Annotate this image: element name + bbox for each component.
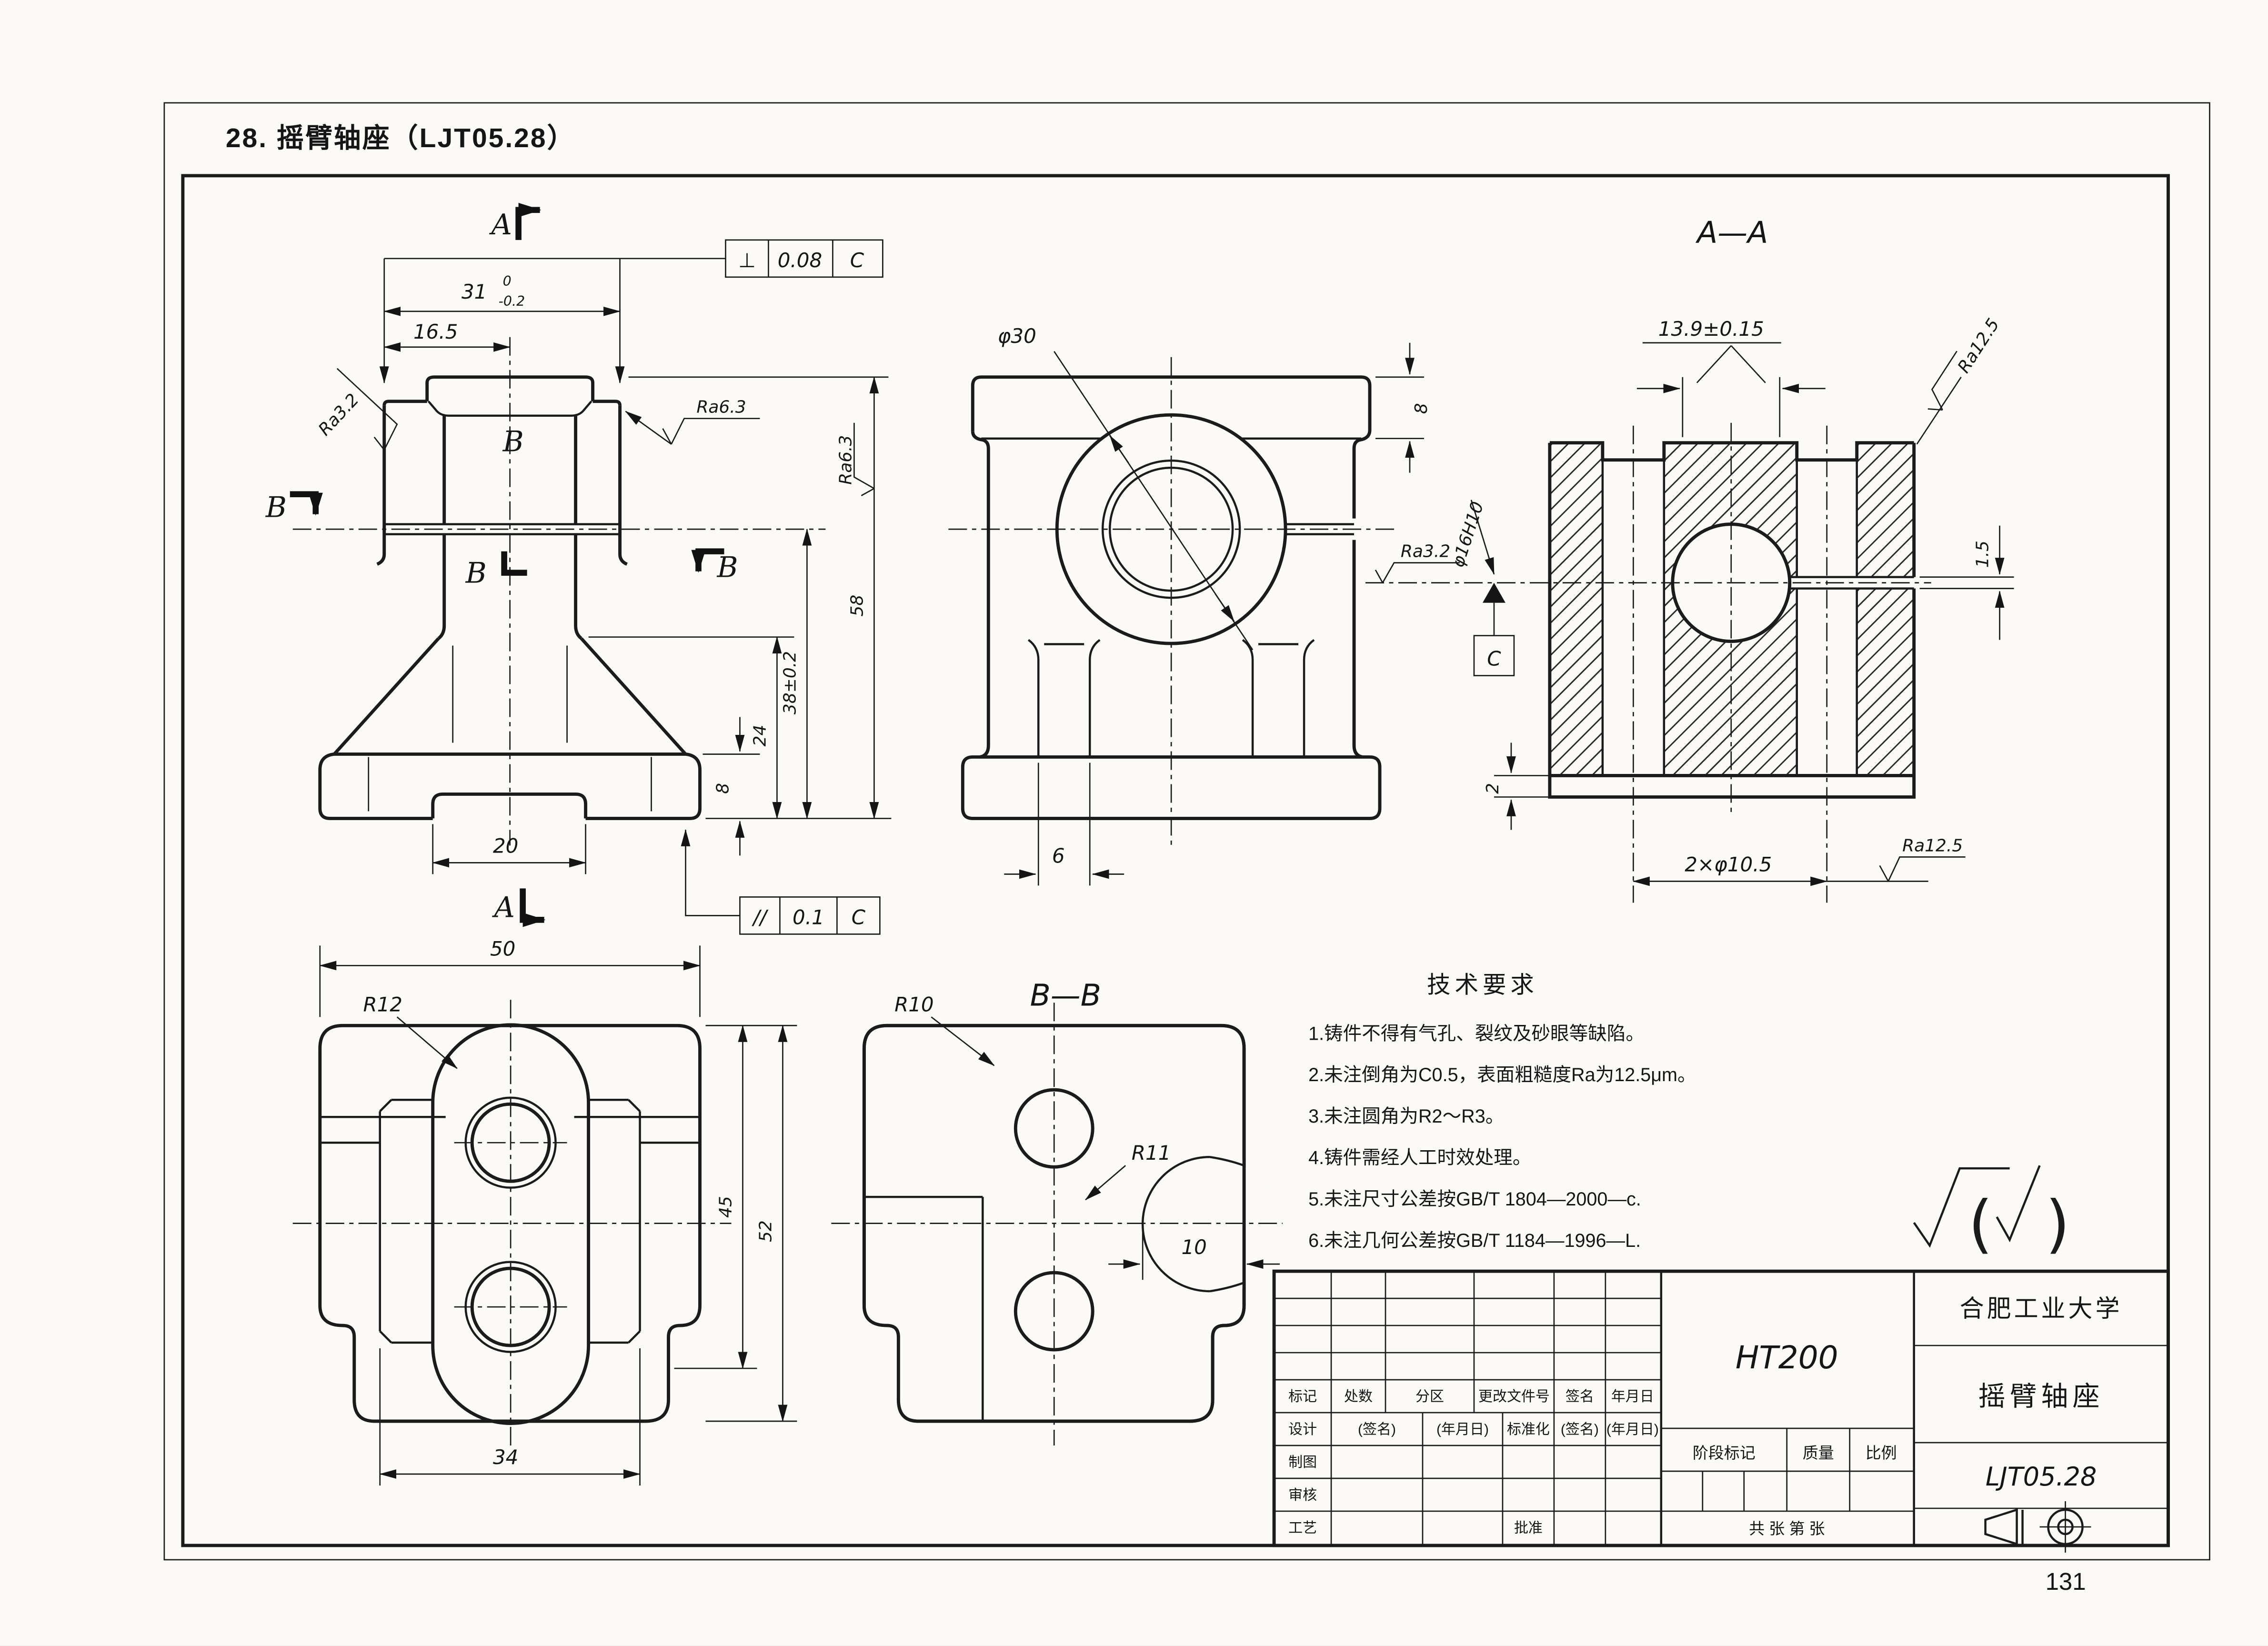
tb-sheets: 共 张 第 张 [1749, 1520, 1825, 1537]
tb-process: 工艺 [1288, 1520, 1317, 1536]
dim-52: 52 [756, 1220, 775, 1242]
dim-1-5: 1.5 [1973, 541, 1993, 568]
tech-title: 技术要求 [1427, 972, 1538, 998]
dim-20: 20 [493, 834, 518, 857]
section-b-right-label: B [716, 551, 738, 584]
tech-item-4: 4.铸件需经人工时效处理。 [1308, 1147, 1531, 1168]
tb-company: 合肥工业大学 [1960, 1295, 2123, 1322]
dim-r12: R12 [363, 993, 402, 1016]
tb-material: HT200 [1736, 1339, 1838, 1376]
other-surfaces-roughness-symbol: ( ) [1914, 1165, 2070, 1261]
dim-31: 31 [462, 280, 487, 303]
ra125-bottom-text: Ra12.5 [1902, 836, 1963, 855]
section-b-center-label: B [502, 425, 524, 459]
ra63-mid-text: Ra6.3 [696, 398, 746, 417]
fcf-perp-symbol: ⊥ [738, 249, 756, 272]
datum-triangle [1483, 583, 1505, 603]
revision-table-grid [1274, 1271, 1661, 1546]
dim-50: 50 [490, 937, 515, 960]
surface-finish-ra63-mid: Ra6.3 [626, 398, 760, 444]
datum-c-label: C [1487, 647, 1501, 671]
tb-rev-doc: 更改文件号 [1478, 1389, 1550, 1405]
side-view: φ30 8 6 [948, 324, 1431, 886]
middle-grid [1661, 1428, 1914, 1511]
note-paren-close: ) [2046, 1188, 2070, 1261]
page-number: 131 [2046, 1568, 2086, 1595]
plan-linework [293, 1000, 732, 1445]
tb-part-name: 摇臂轴座 [1978, 1381, 2104, 1412]
tb-std-sign: (签名) [1561, 1422, 1599, 1437]
dim-16-5: 16.5 [413, 320, 458, 343]
tb-draw: 制图 [1288, 1455, 1317, 1470]
engineering-drawing: 28. 摇臂轴座（LJT05.28） 131 [0, 0, 2268, 1646]
tb-scale: 比例 [1866, 1444, 1897, 1462]
tb-drawing-no: LJT05.28 [1986, 1462, 2097, 1492]
dim-34: 34 [493, 1445, 518, 1469]
section-bb-title: B—B [1030, 978, 1101, 1013]
dim-38: 38±0.2 [780, 651, 800, 714]
fcf-par-tolerance: 0.1 [793, 905, 824, 929]
section-a-bottom-label: A [492, 891, 515, 924]
fcf-perp-tolerance: 0.08 [778, 249, 822, 272]
tb-rev-zone: 分区 [1415, 1389, 1444, 1405]
dim-6: 6 [1052, 844, 1065, 867]
title-block: 标记 处数 分区 更改文件号 签名 年月日 设计 (签名) (年月日) 标准化 … [1274, 1271, 2168, 1553]
tb-standardize: 标准化 [1507, 1422, 1550, 1437]
dim-2: 2 [1483, 783, 1503, 794]
tb-design: 设计 [1288, 1422, 1317, 1437]
tb-rev-mark: 标记 [1288, 1389, 1317, 1405]
dim-phi30: φ30 [998, 324, 1036, 348]
fcf-parallelism: // 0.1 C [686, 830, 880, 934]
surface-finish-ra63-right: Ra6.3 [836, 423, 874, 496]
tb-std-date: (年月日) [1606, 1422, 1659, 1437]
ra32-left-text: Ra3.2 [315, 390, 363, 440]
section-b-left-label: B [265, 491, 287, 524]
side-view-linework [948, 357, 1397, 846]
dim-r10: R10 [894, 993, 934, 1016]
section-aa-title: A—A [1695, 215, 1768, 250]
dim-45: 45 [716, 1196, 735, 1218]
note-paren-open: ( [1968, 1188, 1993, 1261]
tb-rev-sign: 签名 [1566, 1389, 1594, 1405]
sheet-borders [164, 103, 2210, 1560]
ra125-top-text: Ra12.5 [1954, 315, 2004, 377]
dim-13-9: 13.9±0.15 [1658, 317, 1764, 341]
side-view-dimensions: φ30 8 6 [998, 324, 1431, 886]
dim-r11: R11 [1132, 1141, 1171, 1164]
dim-24: 24 [750, 725, 770, 747]
section-a-top-label: A [489, 208, 512, 241]
surface-finish-ra125-bottom: Ra12.5 [1880, 836, 1966, 881]
front-view-dimensions: 31 0 -0.2 16.5 ⊥ 0.08 C A A [265, 208, 892, 934]
dim-8-front: 8 [713, 783, 733, 794]
tb-stage: 阶段标记 [1693, 1444, 1756, 1462]
fcf-par-symbol: // [751, 905, 768, 929]
tb-rev-date: 年月日 [1611, 1389, 1654, 1405]
fcf-par-datum: C [852, 905, 866, 929]
bb-linework [831, 1003, 1283, 1445]
page-title: 28. 摇臂轴座（LJT05.28） [226, 123, 576, 153]
plan-dimensions: R12 50 45 52 34 [320, 937, 797, 1485]
section-aa-view: A—A [1365, 215, 2014, 903]
tech-item-1: 1.铸件不得有气孔、裂纹及砂眼等缺陷。 [1308, 1023, 1645, 1044]
bore-callout: φ16H10 C Ra3.2 [1375, 499, 1514, 675]
tb-quality: 质量 [1803, 1444, 1834, 1462]
dim-31-upper-tol: 0 [503, 273, 512, 289]
aa-linework [1365, 423, 1931, 903]
surface-finish-ra125-top: Ra12.5 [1917, 315, 2004, 444]
tech-item-3: 3.未注圆角为R2～R3。 [1308, 1106, 1504, 1127]
plan-view: R12 50 45 52 34 [293, 937, 797, 1485]
dim-2xphi10-5: 2×φ10.5 [1685, 853, 1772, 876]
tb-design-date: (年月日) [1436, 1422, 1489, 1437]
tb-rev-count: 处数 [1344, 1389, 1373, 1405]
section-bb-view: B—B R10 R11 10 [831, 978, 1283, 1445]
front-view: 31 0 -0.2 16.5 ⊥ 0.08 C A A [265, 208, 892, 934]
tb-approve: 批准 [1514, 1520, 1543, 1536]
dim-8-side: 8 [1412, 403, 1431, 414]
tb-check: 审核 [1288, 1487, 1317, 1503]
drawing-sheet: 28. 摇臂轴座（LJT05.28） 131 [0, 0, 2268, 1646]
tb-design-sign: (签名) [1358, 1422, 1396, 1437]
dim-58: 58 [847, 595, 867, 617]
fcf-perp-datum: C [850, 249, 864, 272]
dim-10: 10 [1181, 1235, 1206, 1259]
ra32-bore-text: Ra3.2 [1401, 542, 1450, 562]
ra63-right-text: Ra6.3 [836, 435, 855, 485]
dim-31-lower-tol: -0.2 [499, 293, 525, 309]
section-b-lower-label: B [465, 557, 487, 590]
technical-requirements: 技术要求 1.铸件不得有气孔、裂纹及砂眼等缺陷。 2.未注倒角为C0.5，表面粗… [1308, 972, 1696, 1251]
tech-item-5: 5.未注尺寸公差按GB/T 1804—2000—c. [1308, 1189, 1641, 1210]
tech-item-2: 2.未注倒角为C0.5，表面粗糙度Ra为12.5μm。 [1308, 1064, 1696, 1085]
tech-item-6: 6.未注几何公差按GB/T 1184—1996—L. [1308, 1230, 1641, 1251]
